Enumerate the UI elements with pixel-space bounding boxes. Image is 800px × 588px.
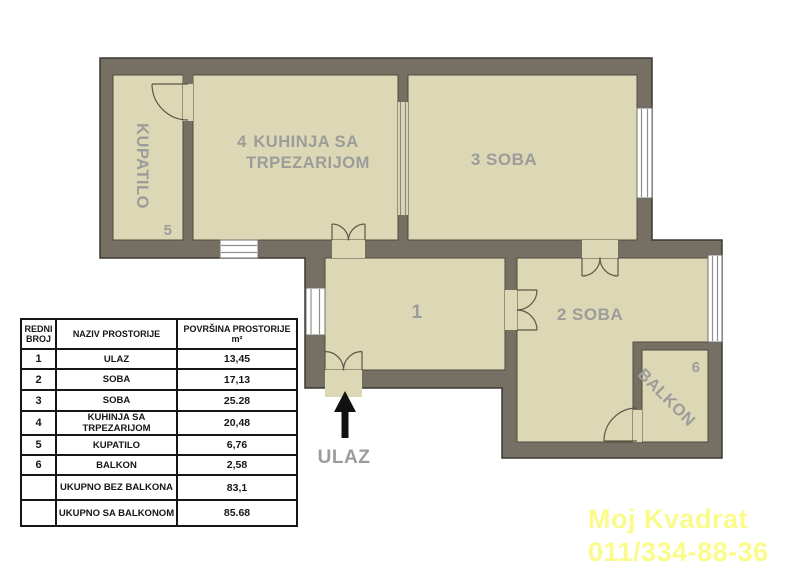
row-area: 85.68	[177, 500, 297, 526]
table-row-total: UKUPNO BEZ BALKONA 83,1	[21, 475, 297, 500]
table-row: 5 KUPATILO 6,76	[21, 435, 297, 455]
label-hodnik-number: 1	[411, 302, 422, 323]
window-soba2-right	[708, 255, 722, 342]
row-name: BALKON	[56, 455, 177, 475]
row-name: UKUPNO BEZ BALKONA	[56, 475, 177, 500]
table-row: 1 ULAZ 13,45	[21, 349, 297, 369]
row-area: 13,45	[177, 349, 297, 369]
area-table: REDNI BROJ NAZIV PROSTORIJE POVRŠINA PRO…	[20, 318, 298, 527]
label-kuhinja-line2: TRPEZARIJOM	[246, 154, 370, 172]
row-num: 1	[21, 349, 56, 369]
arrow-up-icon	[334, 391, 356, 438]
label-soba2: 2 SOBA	[557, 305, 623, 324]
row-num: 2	[21, 369, 56, 390]
row-num	[21, 475, 56, 500]
watermark-phone: 011/334-88-36	[588, 536, 769, 569]
opening-balkon-door	[633, 410, 642, 442]
header-povrsina: POVRŠINA PROSTORIJE m²	[177, 319, 297, 349]
row-area: 83,1	[177, 475, 297, 500]
table-row-total: UKUPNO SA BALKONOM 85.68	[21, 500, 297, 526]
window-kuhinja-bottom	[220, 240, 258, 258]
row-num: 3	[21, 390, 56, 411]
label-kupatilo-number: 5	[164, 222, 173, 239]
table-row: 6 BALKON 2,58	[21, 455, 297, 475]
header-naziv: NAZIV PROSTORIJE	[56, 319, 177, 349]
opening-kuhinja-door	[332, 240, 365, 258]
row-name: SOBA	[56, 369, 177, 390]
opening-hodnik-soba2-door	[505, 290, 517, 330]
label-entrance: ULAZ	[318, 447, 371, 468]
watermark-brand: Moj Kvadrat	[588, 503, 769, 536]
row-name: KUHINJA SA TRPEZARIJOM	[56, 411, 177, 435]
table-row: 4 KUHINJA SA TRPEZARIJOM 20,48	[21, 411, 297, 435]
entrance-arrow	[334, 391, 356, 438]
row-name: ULAZ	[56, 349, 177, 369]
row-area: 2,58	[177, 455, 297, 475]
table-row: 2 SOBA 17,13	[21, 369, 297, 390]
row-num: 5	[21, 435, 56, 455]
label-soba3: 3 SOBA	[471, 150, 537, 169]
opening-soba2-top-door	[582, 240, 618, 258]
wall-stubs	[183, 75, 193, 84]
label-balkon-number: 6	[692, 359, 701, 376]
row-area: 25.28	[177, 390, 297, 411]
label-kuhinja-number: 4	[237, 133, 247, 151]
window-soba3-right	[637, 108, 652, 198]
row-name: KUPATILO	[56, 435, 177, 455]
opening-entrance-door	[325, 370, 362, 388]
label-kuhinja-line1: KUHINJA SA	[253, 133, 358, 151]
row-name: UKUPNO SA BALKONOM	[56, 500, 177, 526]
row-num: 6	[21, 455, 56, 475]
row-area: 6,76	[177, 435, 297, 455]
row-area: 17,13	[177, 369, 297, 390]
label-kupatilo: KUPATILO	[133, 123, 151, 209]
header-redni-broj: REDNI BROJ	[21, 319, 56, 349]
window-hodnik-left	[306, 288, 325, 335]
table-row: 3 SOBA 25.28	[21, 390, 297, 411]
kupatilo-door-jamb	[183, 75, 193, 84]
row-area: 20,48	[177, 411, 297, 435]
row-name: SOBA	[56, 390, 177, 411]
opening-kuhinja-soba3	[398, 102, 408, 215]
row-num	[21, 500, 56, 526]
table-header-row: REDNI BROJ NAZIV PROSTORIJE POVRŠINA PRO…	[21, 319, 297, 349]
watermark: Moj Kvadrat 011/334-88-36	[588, 503, 769, 569]
row-num: 4	[21, 411, 56, 435]
floor-plan-page: KUPATILO 5 4 KUHINJA SA TRPEZARIJOM 3 SO…	[0, 0, 800, 588]
